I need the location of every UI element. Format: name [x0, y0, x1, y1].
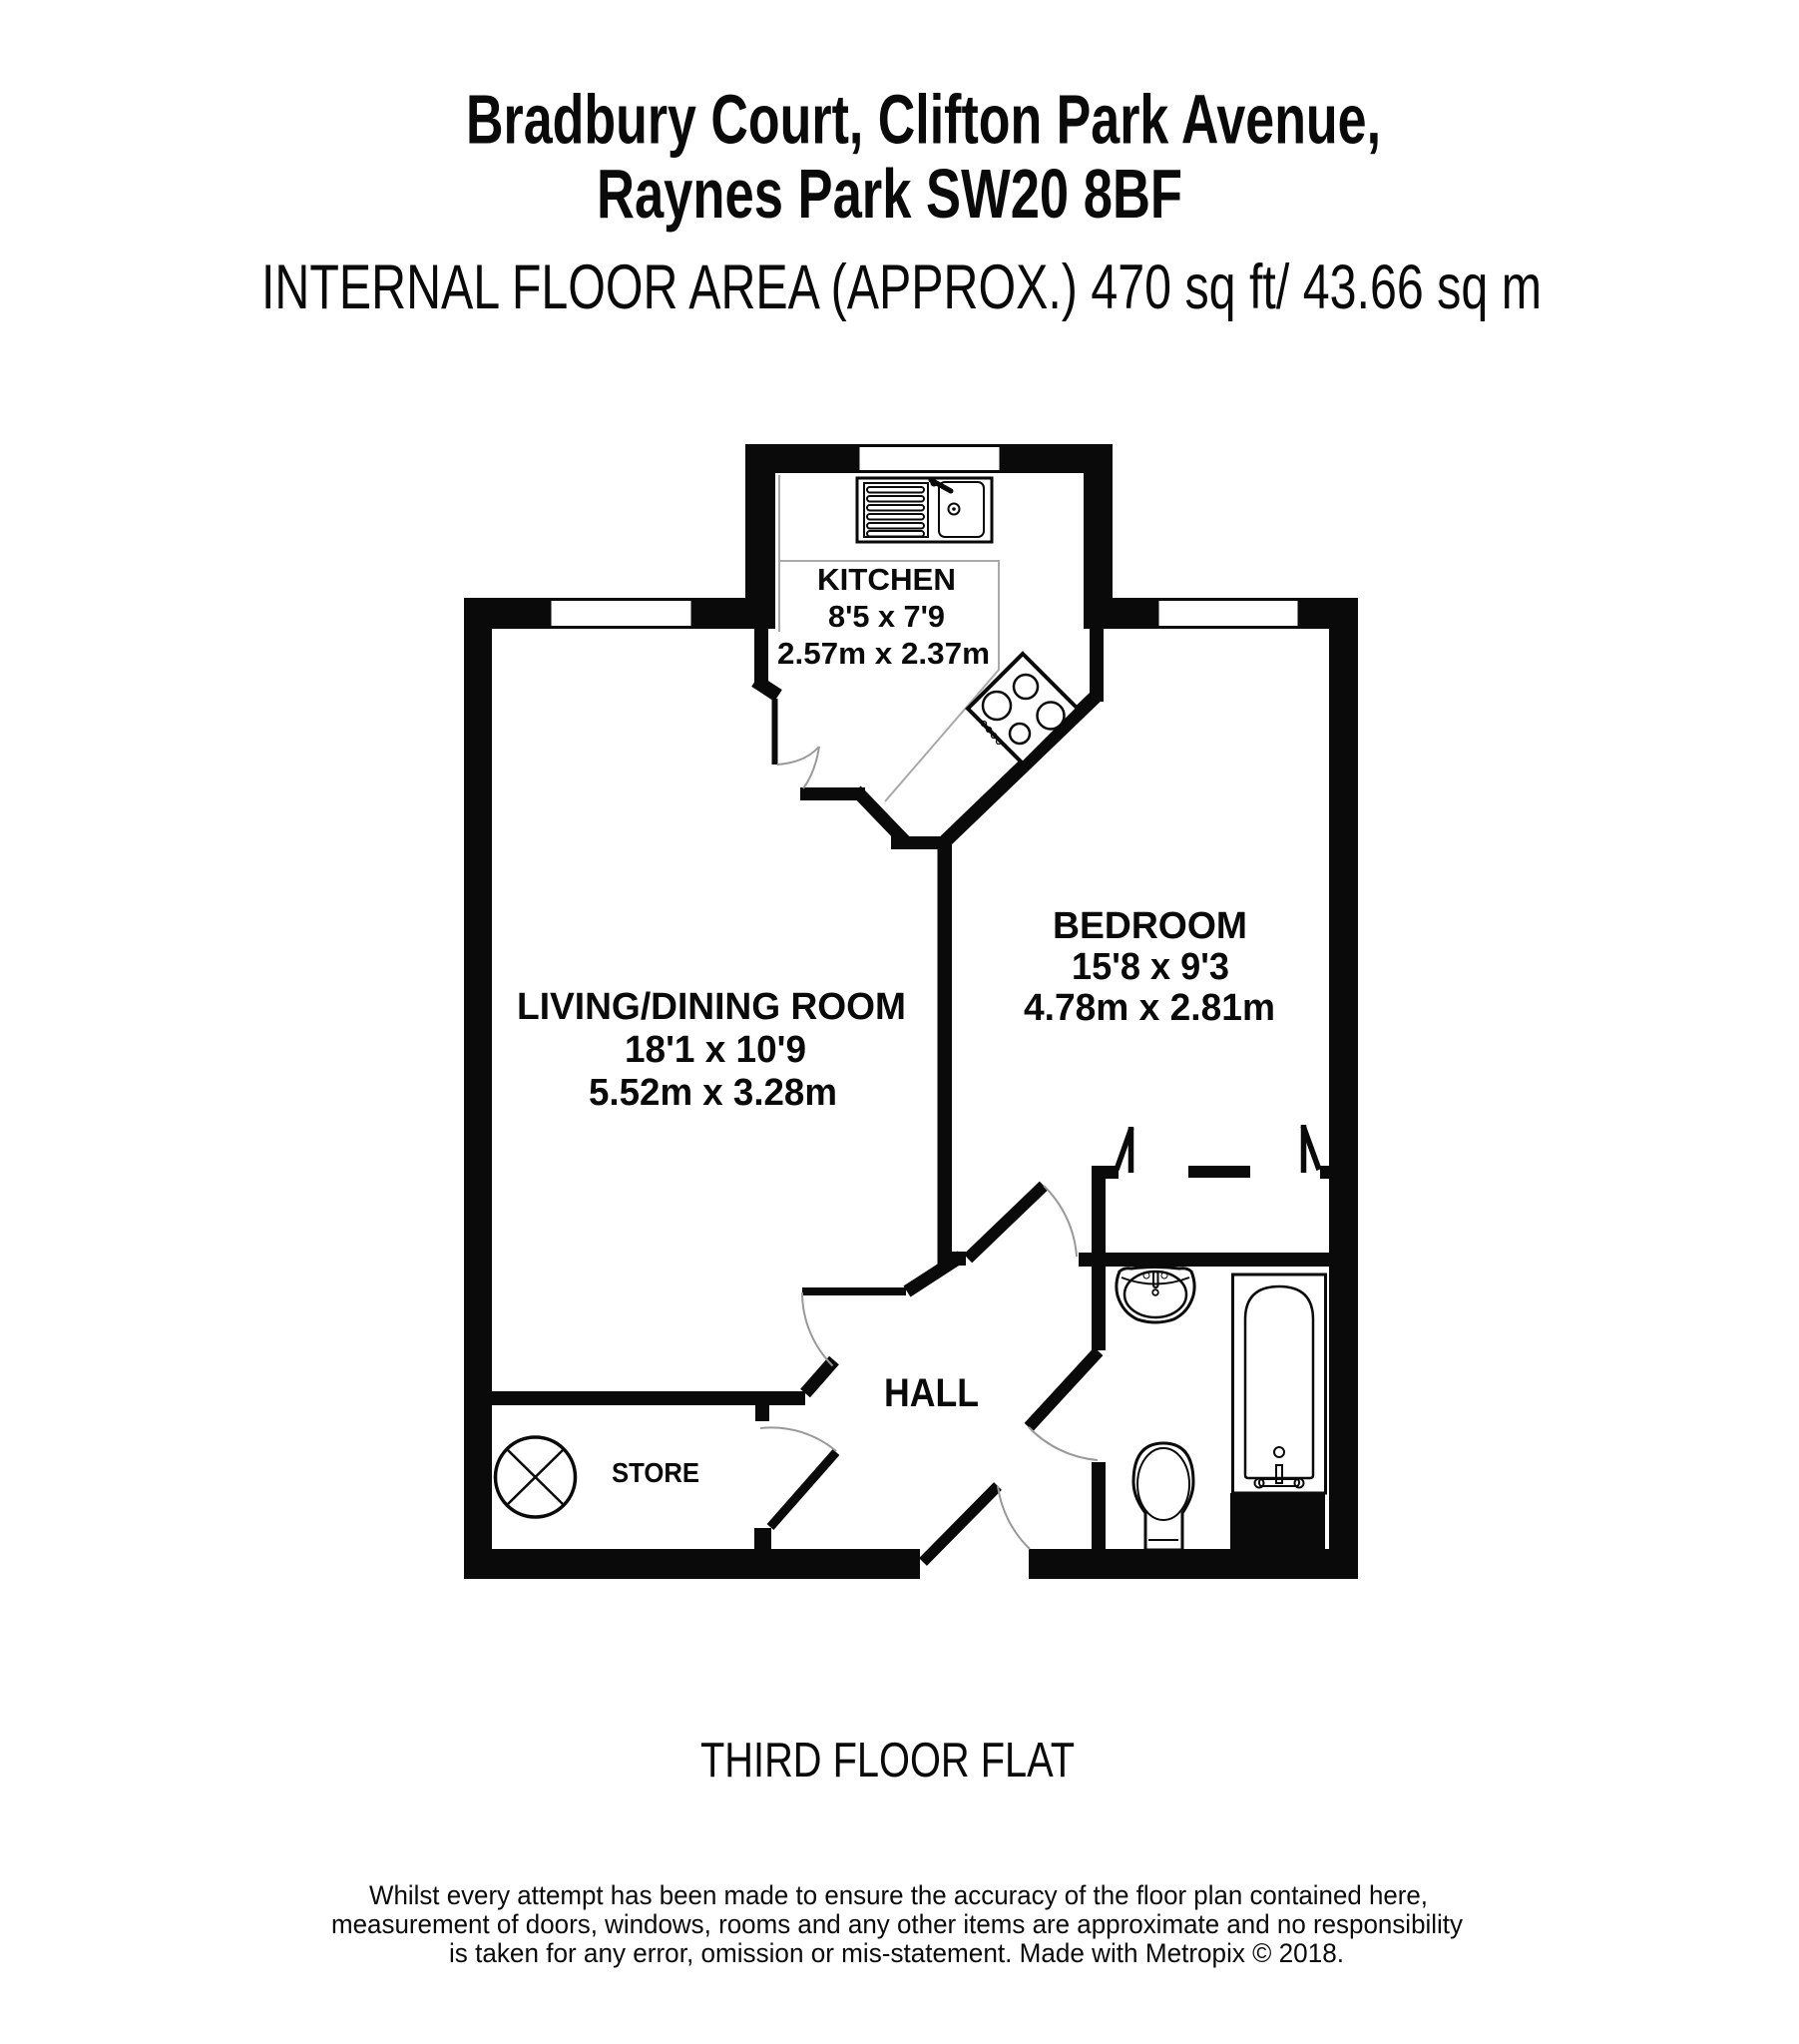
svg-text:2.57m x 2.37m: 2.57m x 2.37m	[777, 636, 990, 671]
svg-text:8'5 x 7'9: 8'5 x 7'9	[828, 599, 945, 634]
svg-text:15'8 x 9'3: 15'8 x 9'3	[1072, 946, 1229, 988]
svg-text:INTERNAL FLOOR AREA (APPROX.): INTERNAL FLOOR AREA (APPROX.) 470 sq ft/…	[261, 253, 1542, 322]
svg-text:Whilst every attempt has been: Whilst every attempt has been made to en…	[369, 1880, 1428, 1910]
svg-text:HALL: HALL	[884, 1371, 979, 1415]
svg-text:5.52m x 3.28m: 5.52m x 3.28m	[589, 1072, 837, 1114]
svg-text:BEDROOM: BEDROOM	[1053, 905, 1247, 947]
svg-text:Bradbury Court, Clifton Park A: Bradbury Court, Clifton Park Avenue,	[466, 81, 1381, 159]
svg-text:18'1 x 10'9: 18'1 x 10'9	[625, 1029, 806, 1071]
svg-text:measurement of doors, windows,: measurement of doors, windows, rooms and…	[331, 1909, 1463, 1939]
svg-text:KITCHEN: KITCHEN	[817, 562, 956, 597]
svg-text:Raynes Park SW20 8BF: Raynes Park SW20 8BF	[597, 155, 1182, 233]
svg-text:STORE: STORE	[612, 1457, 699, 1488]
svg-text:is taken for any error, omissi: is taken for any error, omission or mis-…	[449, 1938, 1344, 1968]
svg-text:THIRD FLOOR FLAT: THIRD FLOOR FLAT	[700, 1734, 1075, 1788]
svg-text:LIVING/DINING ROOM: LIVING/DINING ROOM	[517, 986, 906, 1028]
svg-text:4.78m x 2.81m: 4.78m x 2.81m	[1024, 987, 1275, 1029]
